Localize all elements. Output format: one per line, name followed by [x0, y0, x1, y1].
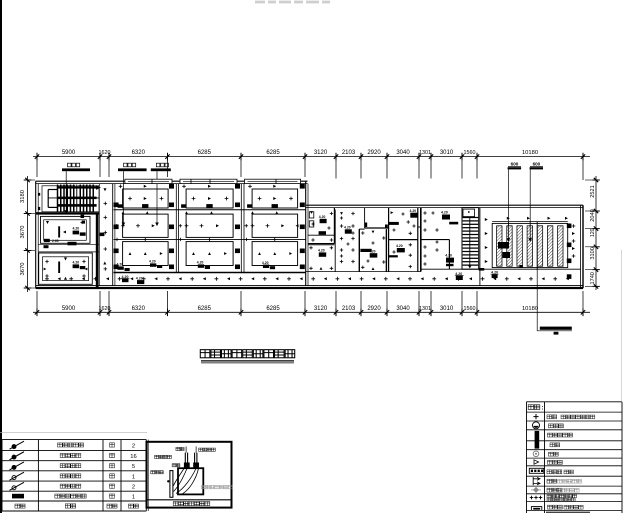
svg-text:3010: 3010	[440, 150, 454, 156]
svg-text:10180: 10180	[522, 306, 538, 312]
svg-text:4.20: 4.20	[369, 249, 376, 253]
svg-text:2920: 2920	[367, 306, 381, 312]
svg-text:4.20: 4.20	[318, 249, 325, 253]
svg-text:1301: 1301	[419, 306, 431, 312]
svg-text:3100: 3100	[590, 247, 596, 259]
svg-text:6285: 6285	[198, 306, 212, 312]
svg-text:6285: 6285	[266, 306, 280, 312]
svg-text:3180: 3180	[20, 190, 26, 203]
svg-text:4.20: 4.20	[197, 261, 204, 265]
svg-text::: :	[542, 406, 544, 412]
svg-text:2: 2	[132, 443, 135, 449]
svg-text:1740: 1740	[590, 272, 596, 284]
svg-text:600: 600	[511, 162, 519, 167]
svg-text:4.20: 4.20	[319, 215, 326, 219]
svg-text:3670: 3670	[20, 226, 26, 239]
svg-text:6285: 6285	[198, 150, 212, 156]
svg-text:3040: 3040	[396, 150, 410, 156]
svg-text:4.20: 4.20	[262, 261, 269, 265]
svg-text:2103: 2103	[342, 150, 356, 156]
svg-text:1560: 1560	[464, 306, 476, 312]
svg-text:4.20: 4.20	[73, 260, 80, 264]
svg-text:4.20: 4.20	[410, 209, 417, 213]
svg-text:3120: 3120	[314, 150, 328, 156]
svg-text:1: 1	[132, 494, 135, 500]
svg-text:3040: 3040	[396, 306, 410, 312]
svg-text:6320: 6320	[132, 150, 146, 156]
svg-text:5900: 5900	[62, 150, 76, 156]
svg-text:3010: 3010	[440, 306, 454, 312]
svg-text:2.60: 2.60	[52, 239, 59, 243]
svg-text:4.20: 4.20	[73, 227, 80, 231]
svg-text:1620: 1620	[99, 150, 111, 156]
svg-text:2: 2	[132, 484, 135, 490]
svg-text:5: 5	[132, 464, 135, 470]
svg-text:4.20: 4.20	[136, 276, 143, 280]
svg-text:10180: 10180	[522, 150, 538, 156]
svg-text:4.20: 4.20	[445, 254, 452, 258]
svg-text:1301: 1301	[419, 150, 431, 156]
svg-text:120: 120	[590, 228, 596, 237]
svg-text:600: 600	[533, 162, 541, 167]
svg-text:5900: 5900	[62, 306, 76, 312]
svg-text:6285: 6285	[266, 150, 280, 156]
svg-text:2920: 2920	[367, 150, 381, 156]
svg-text:4.20: 4.20	[149, 260, 156, 264]
svg-text:3670: 3670	[20, 263, 26, 276]
svg-text:2521: 2521	[590, 185, 596, 197]
svg-text:4.20: 4.20	[344, 225, 351, 229]
svg-text:4.20: 4.20	[396, 244, 403, 248]
svg-text:6320: 6320	[132, 306, 146, 312]
svg-text:3120: 3120	[314, 306, 328, 312]
svg-text:4.20: 4.20	[441, 211, 448, 215]
svg-text:1: 1	[132, 474, 135, 480]
svg-text:16: 16	[130, 454, 136, 460]
svg-text:1560: 1560	[464, 150, 476, 156]
svg-text:2103: 2103	[342, 306, 356, 312]
